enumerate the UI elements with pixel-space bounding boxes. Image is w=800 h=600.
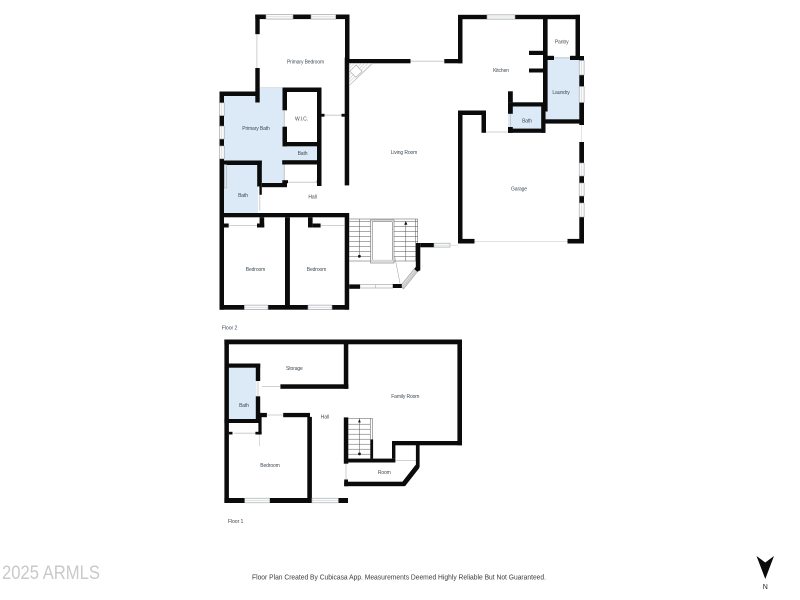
svg-text:Bath: Bath <box>238 193 248 199</box>
svg-text:Kitchen: Kitchen <box>493 68 509 74</box>
svg-text:Room: Room <box>378 470 391 476</box>
svg-text:Floor 2: Floor 2 <box>222 325 238 331</box>
svg-text:Primary Bedroom: Primary Bedroom <box>287 60 324 66</box>
svg-text:Pantry: Pantry <box>555 39 569 45</box>
svg-text:Hall: Hall <box>321 414 329 420</box>
svg-text:Living Room: Living Room <box>391 150 417 156</box>
svg-text:N: N <box>763 584 768 591</box>
svg-text:Hall: Hall <box>308 195 316 201</box>
svg-text:2025 ARMLS: 2025 ARMLS <box>2 563 100 584</box>
svg-text:Laundry: Laundry <box>552 90 570 96</box>
svg-text:Bedroom: Bedroom <box>260 463 279 469</box>
svg-text:Primary Bath: Primary Bath <box>242 126 270 132</box>
svg-text:Bedroom: Bedroom <box>246 267 265 273</box>
svg-text:Bath: Bath <box>522 119 532 125</box>
svg-text:Garage: Garage <box>511 187 527 193</box>
svg-text:W.I.C.: W.I.C. <box>295 117 308 123</box>
svg-text:Floor 1: Floor 1 <box>228 519 244 525</box>
svg-text:Family Room: Family Room <box>391 394 419 400</box>
svg-text:Bath: Bath <box>239 403 249 409</box>
svg-text:Storage: Storage <box>286 366 303 372</box>
svg-text:Bedroom: Bedroom <box>307 267 326 273</box>
svg-text:Floor Plan Created By Cubicasa: Floor Plan Created By Cubicasa App. Meas… <box>252 575 546 582</box>
svg-text:Bath: Bath <box>298 151 308 157</box>
